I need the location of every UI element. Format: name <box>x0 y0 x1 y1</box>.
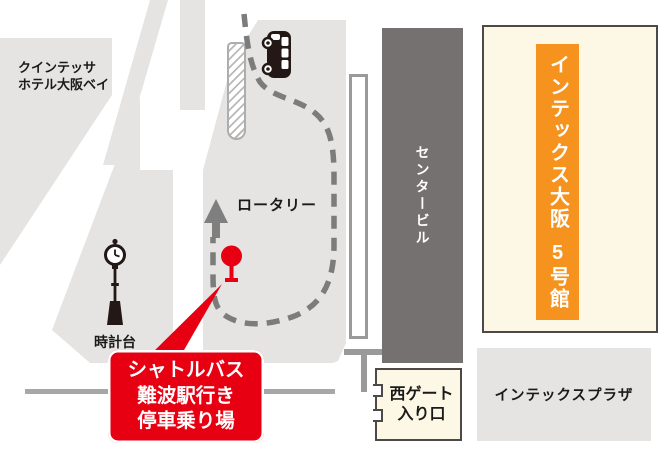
west-gate-notch-bottom <box>373 409 383 422</box>
west-gate-line2: 入り口 <box>389 405 453 425</box>
hotel-label-line1: クインテッサ <box>18 60 109 77</box>
intex-plaza: インテックスプラザ <box>477 348 651 441</box>
clock-tower-label: 時計台 <box>88 332 142 352</box>
intex-osaka-hall5-banner: インテックス大阪5号館 <box>536 44 579 320</box>
west-gate-notch-top <box>373 384 383 397</box>
west-gate-line1: 西ゲート <box>389 385 453 405</box>
center-building: センタービル <box>382 28 463 363</box>
shuttle-bus-stop-callout: シャトルバス 難波駅行き 停車乗り場 <box>108 350 264 443</box>
bus-icon <box>261 30 293 80</box>
callout-line2: 難波駅行き <box>127 384 244 409</box>
west-gate-entrance-box: 西ゲート 入り口 <box>375 368 462 441</box>
hall5-name-part1: インテックス大阪 <box>547 54 569 230</box>
callout-line3: 停車乗り場 <box>127 409 244 434</box>
hall5-name-part2: 5号館 <box>547 242 569 310</box>
center-building-label: センタービル <box>413 145 433 247</box>
gate-path-vertical <box>361 355 367 392</box>
callout-line1: シャトルバス <box>127 358 244 383</box>
shuttle-bus-access-map: シャトルバス 難波駅行き 停車乗り場 クインテッサ ホテル大阪ベイ ロータリー … <box>0 0 660 450</box>
hotel-label: クインテッサ ホテル大阪ベイ <box>18 60 109 94</box>
intex-plaza-label: インテックスプラザ <box>494 384 633 405</box>
callout-pointer <box>140 275 230 360</box>
rotary-label: ロータリー <box>237 194 317 215</box>
up-arrow-icon <box>203 197 229 239</box>
covered-walkway-shape <box>349 74 368 339</box>
hotel-label-line2: ホテル大阪ベイ <box>18 77 109 94</box>
clock-tower-icon <box>101 238 129 333</box>
intex-osaka-hall5-building: インテックス大阪5号館 <box>482 25 658 333</box>
